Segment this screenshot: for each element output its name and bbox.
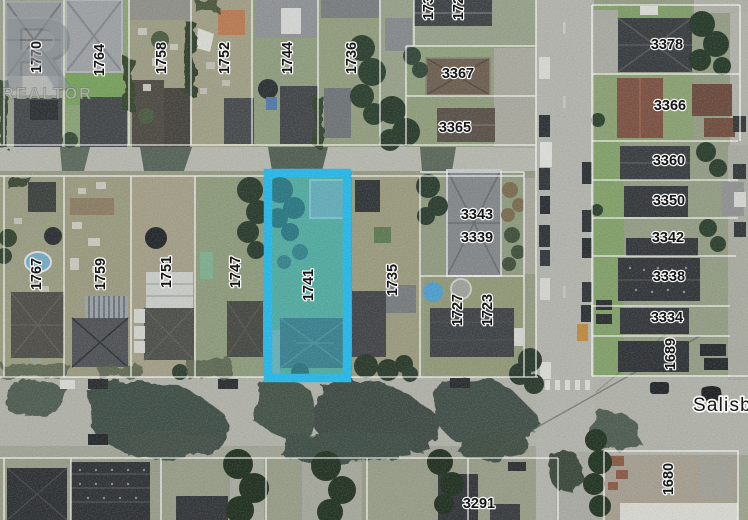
svg-text:REALTOR: REALTOR (2, 85, 93, 103)
